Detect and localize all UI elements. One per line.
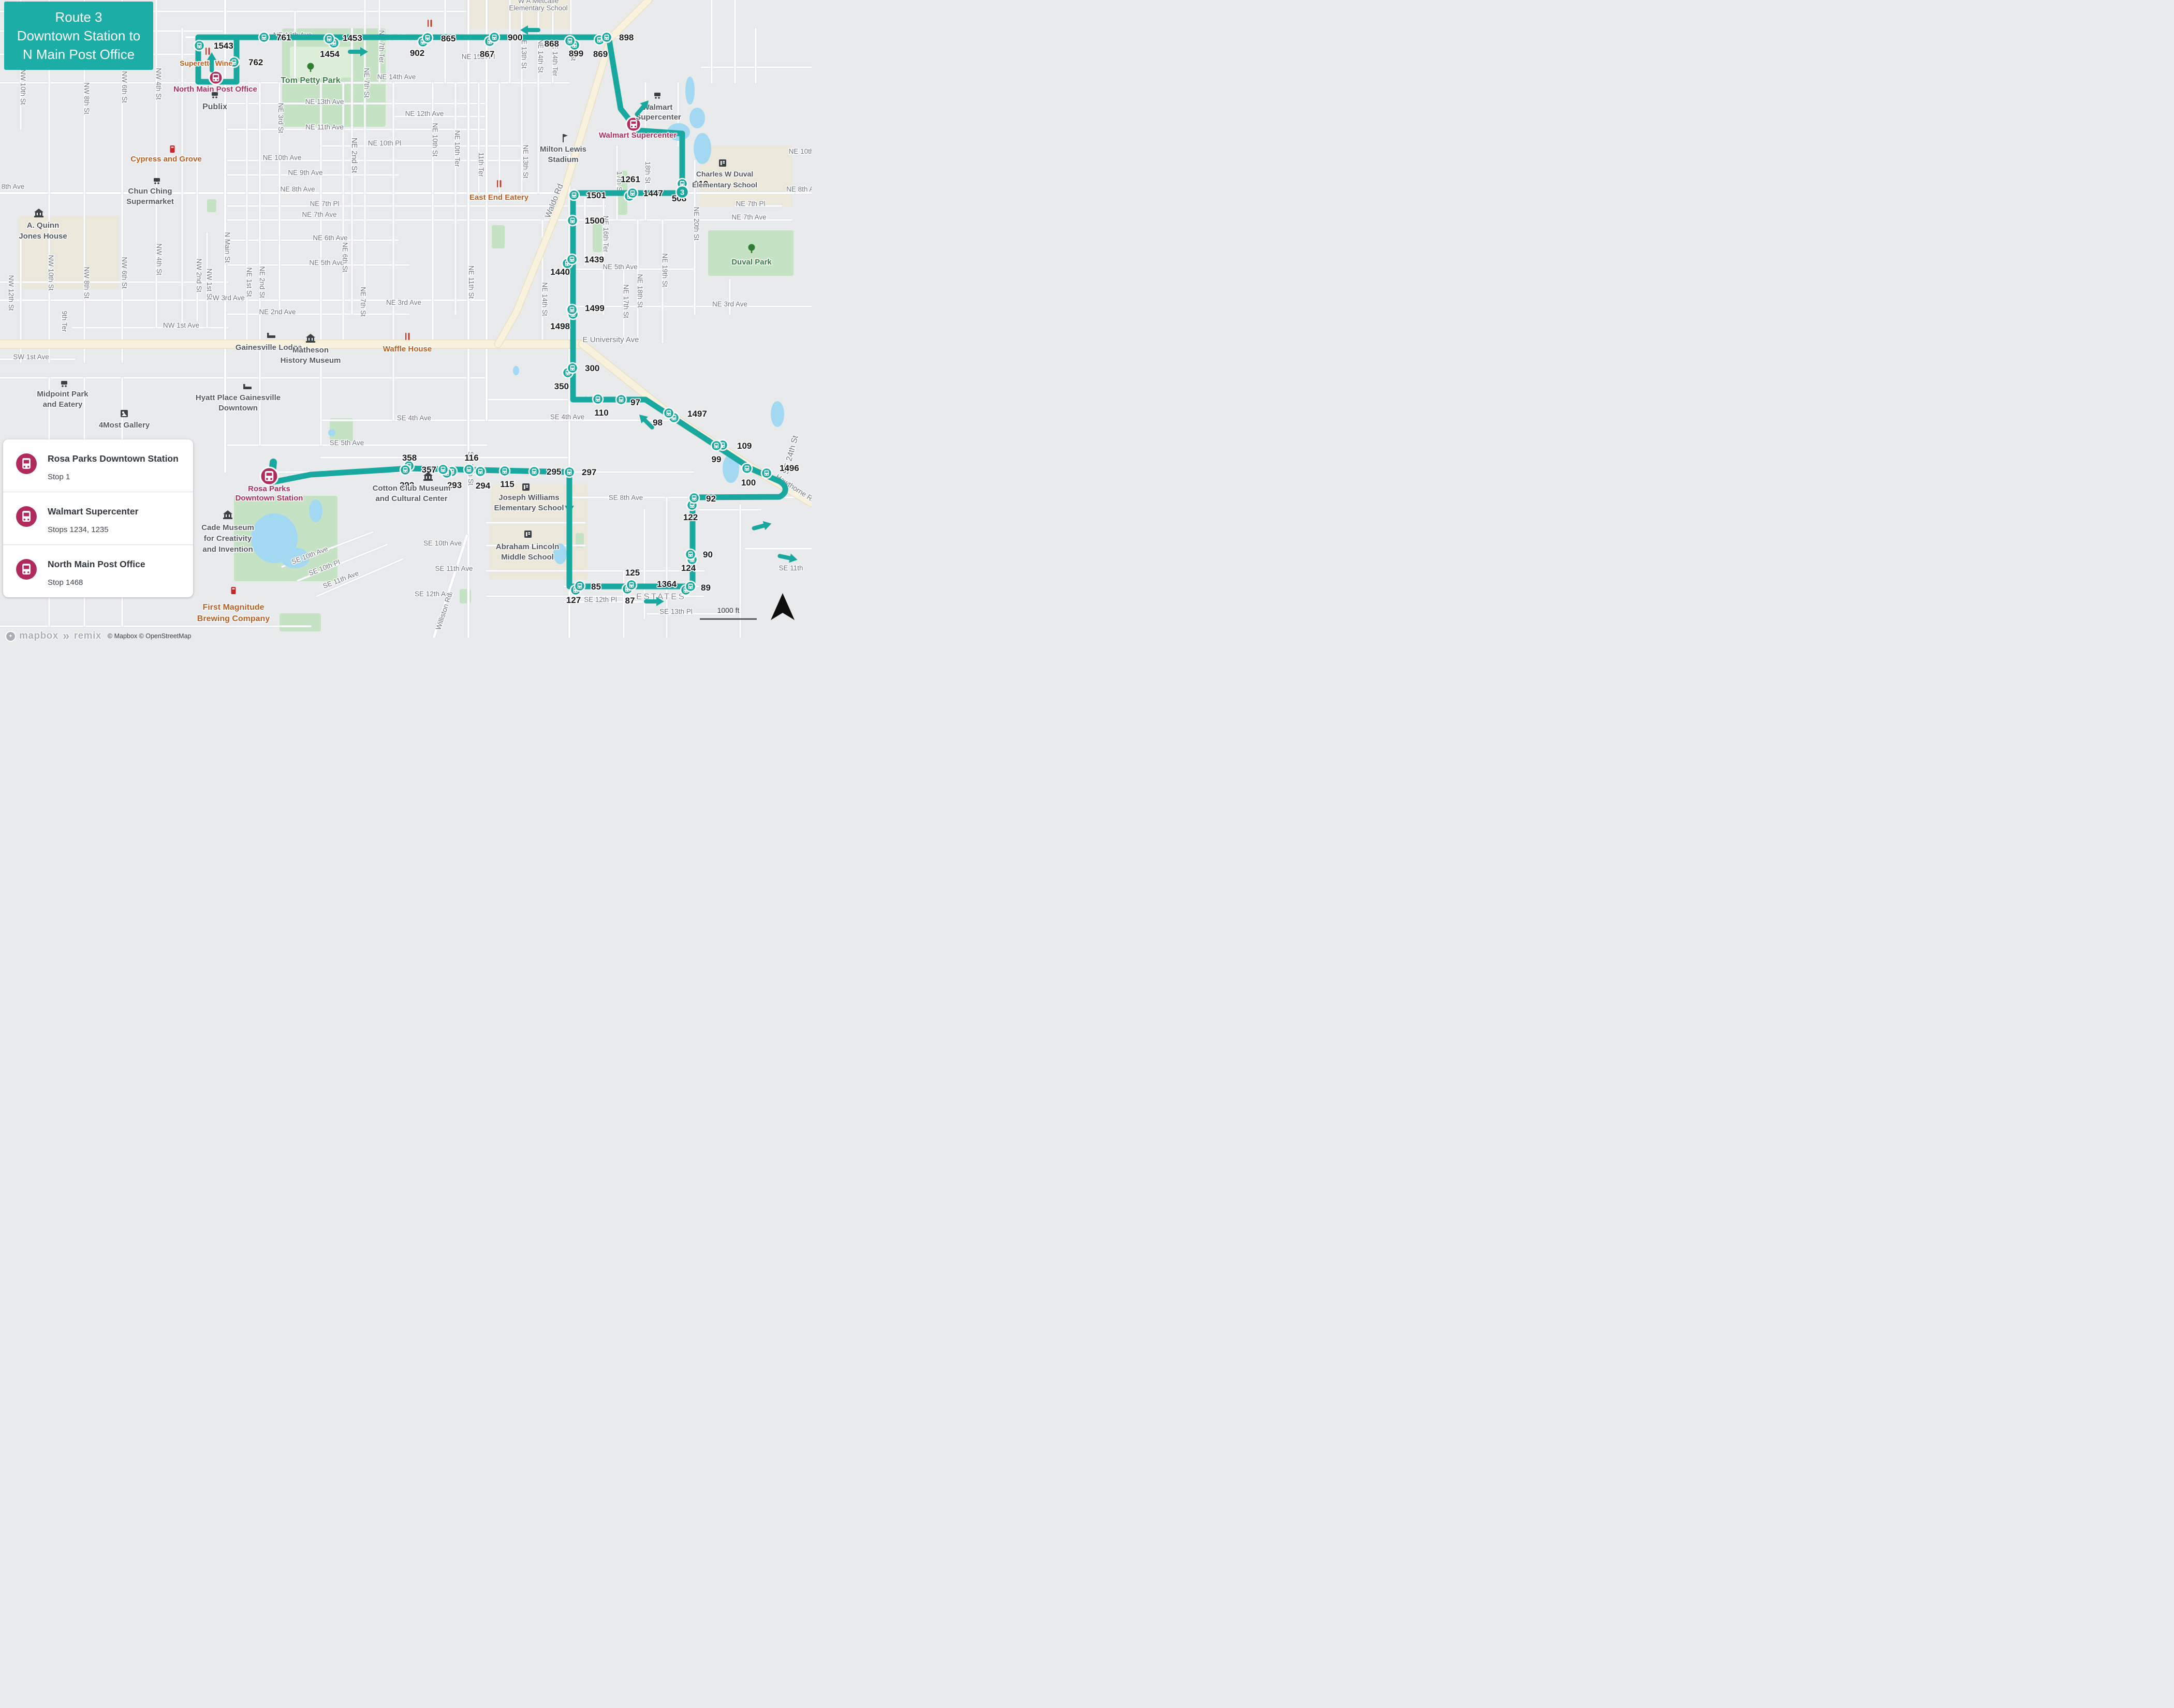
beer-icon [171,146,174,148]
bus-glyph [688,584,693,589]
stop-number-label: 100 [741,478,756,488]
route-title-card: Route 3 Downtown Station to N Main Post … [4,2,153,70]
stop-number-label: 110 [594,408,608,418]
stop-number-label: 98 [653,418,663,428]
bus-glyph [492,35,497,40]
park-area [492,225,505,248]
bus-glyph-light [213,79,215,81]
legend-item-rosa-parks[interactable]: Rosa Parks Downtown Station Stop 1 [3,439,193,492]
bus-glyph-window [605,36,608,37]
bus-glyph-window [214,75,218,77]
street-label: NE 5th Ave [603,263,637,271]
bus-glyph-light [596,400,597,401]
stop-number-label: 294 [476,481,491,491]
poi-label: Matheson [292,346,329,355]
bus-glyph-window [198,44,201,46]
cart-icon [654,93,660,96]
bus-glyph-light [442,470,443,472]
street-label: NE 6th Ave [313,234,347,242]
street-label: NW 8th St [83,267,91,299]
bus-glyph-light [566,264,567,266]
bus-glyph [570,218,575,223]
street-label: NE 13th St [522,144,530,179]
school-icon [719,159,726,167]
museum-icon [309,338,310,341]
bus-glyph-light [570,311,571,312]
mapbox-logo-icon[interactable]: ✦ [6,632,15,641]
bus-glyph [688,552,693,557]
street-label: NE 13th Ave [305,98,344,106]
bus-glyph-window [631,122,636,124]
bus-glyph [532,469,537,474]
cart-icon [215,96,217,98]
bus-glyph-window [745,467,748,468]
street-label: SE 4th Ave [397,414,432,422]
stop-number-label: 865 [441,34,456,43]
bus-glyph-light [667,414,668,415]
bus-glyph-light [505,472,506,473]
bus-glyph [265,471,273,481]
bus-glyph-light [444,470,445,472]
street-label: NE 1st St [245,267,253,297]
bus-glyph-light [672,419,673,420]
street-label: NW 10th St [47,255,55,290]
bus-glyph-light [503,472,504,473]
bus-glyph-light [598,400,599,401]
stop-number-label: 97 [630,397,640,407]
lodging-icon [267,335,275,338]
poi-label: for Creativity [204,534,252,543]
stop-number-label: 1496 [780,463,799,473]
street-label: NW 6th St [121,257,128,289]
bus-glyph-light [576,591,577,592]
water-body [513,366,519,375]
museum-icon [37,213,38,215]
street-label: SW 1st Ave [13,353,49,361]
street-label: NE 7th St [359,287,367,317]
street-label: SE 12th Pl [584,596,617,603]
stop-number-label: 762 [248,57,263,67]
bus-glyph-light [689,587,690,588]
stop-number-label: 122 [683,512,698,522]
museum-icon [429,476,430,479]
street-label: N Main St [224,232,231,263]
poi-label: Middle School [501,553,554,562]
bus-glyph [667,410,671,416]
poi-label: Midpoint Park [37,390,89,399]
bus-glyph-window [571,366,574,368]
water-body [694,133,711,164]
stop-number-label: 1499 [585,303,605,313]
bus-glyph-light [332,44,333,45]
bus-glyph-window [578,584,581,586]
street-label: NE 8th Av [786,185,812,193]
bus-glyph-light [691,555,692,556]
stop-number-label: 1500 [585,216,605,226]
stop-number-label: 1497 [687,409,707,419]
street-label: NE 12th Ave [405,110,444,117]
street-label: NE 7th Pl [736,200,765,208]
bus-glyph-window [630,583,633,585]
poi-label: Brewing Company [197,614,270,623]
bus-glyph-light [217,79,218,81]
map-page: { "title": {"line1":"Route 3","line2":"D… [0,0,812,638]
bus-glyph [441,467,446,472]
station-label: Rosa Parks [248,484,290,493]
stop-number-label: 125 [625,568,640,578]
bus-glyph-window [426,36,429,38]
museum-icon [312,338,313,341]
bus-glyph [403,467,408,473]
street-label: SE 10th Ave [423,539,462,547]
school-icon [721,161,722,165]
bus-glyph-light [600,41,601,42]
bus-glyph-light [423,43,424,44]
street-label: NE 20th St [693,207,700,241]
street-label: SE 8th Ave [609,494,643,502]
museum-icon [34,216,43,217]
bus-glyph-light [479,473,480,474]
bus-stop-icon [16,558,37,580]
poi-label: Tom Petty Park [281,76,340,85]
street-label: SE 11th [778,564,803,572]
tree-icon [310,68,312,72]
street-label: NW 4th St [155,68,163,100]
gallery-icon [122,411,124,414]
poi-label: Charles W Duval [696,170,753,178]
bus-glyph-light [607,38,608,39]
bus-glyph [425,35,430,40]
school-icon [528,534,531,535]
bus-glyph-light [568,473,569,474]
bus-glyph [262,35,267,40]
bus-glyph-light [234,63,236,64]
bus-glyph [567,469,572,475]
bus-glyph-window [689,553,692,554]
lodging-icon [243,387,252,389]
bus-glyph-light [566,374,567,375]
poi-label: Chun Ching [128,187,172,196]
street-label: NW 10th St [19,69,27,105]
bus-glyph-light [747,469,748,470]
bus-glyph-light [447,474,448,475]
bus-glyph-light [628,590,629,591]
poi-label: and Eatery [43,400,83,409]
street-label: SE 5th Ave [330,439,364,447]
street-label: NE 8th Ave [280,185,315,193]
street-label: NE 10th St [431,123,439,157]
legend-stop-name: North Main Post Office [48,557,145,571]
poi-label: Elementary School [494,504,564,512]
bus-glyph-window [570,258,574,259]
legend-stop-ids: Stop 1468 [48,578,145,587]
poi-label: Elementary School [692,181,757,189]
bus-glyph-light [693,506,694,507]
legend-item-post-office[interactable]: North Main Post Office Stop 1468 [3,544,193,597]
museum-icon [307,337,314,341]
bus-glyph-light [568,42,569,43]
street-label: NE 14th St [537,39,545,73]
street-label: 8th Ave [2,183,25,190]
bus-glyph-window [404,468,407,470]
street-label: NE 11th St [467,266,475,299]
copyright-links[interactable]: © Mapbox © OpenStreetMap [108,632,192,640]
museum-icon [226,514,227,517]
bus-glyph-light [572,260,574,261]
bus-glyph [232,60,237,65]
poi-label: Supermarket [126,197,174,206]
stop-number-label: 898 [619,33,634,42]
poi-label: A. Quinn [27,221,60,230]
street-label: NE 10th Ave [263,154,302,161]
bus-glyph [572,193,577,198]
street-label: NE 14th St [541,282,549,316]
bus-glyph-light [535,473,536,474]
bus-glyph-light [630,586,631,587]
bus-glyph-light [571,222,572,223]
school-icon [723,163,725,164]
stops-legend-card: Rosa Parks Downtown Station Stop 1 Walma… [3,439,193,597]
poi-label: East End Eatery [469,193,529,202]
bus-glyph-light [693,499,694,500]
bus-glyph-window [570,308,574,310]
stop-number-label: 1440 [550,267,570,277]
bus-glyph-light [572,196,574,197]
school-icon [528,532,531,533]
bus-glyph-window [568,470,571,472]
school-icon [526,487,528,488]
water-body [771,401,784,427]
route-title-line3: N Main Post Office [23,45,135,64]
bus-glyph [213,73,219,81]
bus-glyph-light [693,561,694,562]
bus-glyph [619,397,624,402]
bus-glyph [570,257,575,262]
cart-icon [62,385,64,387]
bus-glyph-window [328,37,331,39]
map-attribution: ✦ mapbox » remix © Mapbox © OpenStreetMa… [6,629,191,643]
bus-glyph-light [765,474,766,475]
legend-item-walmart[interactable]: Walmart Supercenter Stops 1234, 1235 [3,492,193,544]
stop-number-label: 85 [591,582,601,592]
street-label: 18th St [644,161,652,184]
route-number-badge-text: 3 [680,188,684,197]
stop-number-label: 115 [500,479,514,489]
station-label: Walmart Supercenter [599,131,677,140]
bus-glyph-light [232,63,233,64]
bus-glyph-light [575,196,576,197]
poi-label: Abraham Lincoln [496,542,560,551]
bus-glyph [629,582,634,587]
bus-glyph-light [265,38,266,39]
bus-glyph-light [200,47,201,48]
museum-icon [35,212,42,216]
street-label: NE 10th [789,148,812,155]
bus-glyph-light [723,446,724,447]
bus-glyph-window [689,585,692,586]
bus-glyph-light [626,590,627,591]
poi-label: Joseph Williams [498,493,559,502]
bus-glyph-window [765,472,768,473]
street-label: 11th Ter [477,152,485,177]
bus-glyph-light [689,555,690,556]
street-label: NE 7th Ave [302,211,336,218]
poi-label: and Invention [202,545,253,554]
stop-number-label: 1453 [343,33,362,43]
street-label: NE 7th Pl [310,200,339,208]
bus-glyph-window [493,36,496,37]
bus-glyph-light [717,447,718,448]
bus-glyph-light [691,561,692,562]
bus-glyph-light [715,447,716,448]
bus-glyph-light [467,470,468,472]
bus-glyph-light [570,473,571,474]
stop-number-label: 867 [480,49,494,59]
bus-glyph-window [596,397,599,399]
bus-glyph-light [605,38,606,39]
museum-icon [229,514,230,517]
bus-glyph [570,307,575,312]
bus-glyph-light [691,506,692,507]
stop-number-label: 350 [554,381,569,391]
bus-glyph-light [575,46,576,47]
bus-glyph-window [667,411,670,413]
bus-glyph-window [568,39,571,41]
bus-glyph [197,43,202,48]
school-icon [723,161,725,162]
stop-number-label: 899 [569,49,583,58]
restaurant-icon [431,20,432,27]
bus-glyph-light [574,315,575,316]
bus-glyph-light [493,38,494,39]
bus-glyph-light [570,42,571,43]
bus-glyph-light [469,470,471,472]
bus-glyph-light [270,478,272,480]
museum-icon [40,213,41,215]
bus-glyph-light [571,369,572,370]
school-icon [522,483,530,491]
stop-number-label: 1261 [621,174,640,184]
bus-glyph-light [404,471,405,472]
park-area [708,230,794,276]
bus-glyph-light [620,401,621,402]
bus-glyph [478,469,483,474]
street-label: NE 18th St [636,274,644,308]
museum-icon [223,518,232,519]
poi-label: and Cultural Center [375,494,447,503]
bus-glyph [327,36,332,41]
stop-number-label: 1498 [550,321,570,331]
stop-number-label: 1364 [657,579,677,589]
stop-number-label: 761 [276,33,291,42]
cart-icon [154,182,156,184]
bus-glyph-light [622,401,623,402]
bus-stop-icon [16,453,37,475]
street-label: NE 19th St [661,253,669,287]
poi-label: Downtown [218,404,258,413]
cart-icon [65,385,67,387]
cart-icon [61,381,67,385]
bus-glyph-light [580,587,581,588]
poi-label: Milton Lewis [540,145,586,154]
bus-glyph-light [695,499,696,500]
bus-glyph [714,443,719,448]
bus-glyph-light [669,414,670,415]
street-label: NE 3rd St [277,103,285,134]
poi-label: Duval Park [731,258,772,267]
bus-glyph [692,495,697,500]
poi-label: Publix [202,102,227,111]
poi-label: Waffle House [383,345,432,354]
scale-bar-label: 1000 ft [717,606,740,614]
bus-glyph-light [490,42,491,43]
museum-icon [224,514,231,518]
street-label: NE 2nd St [258,266,266,298]
bus-glyph-light [421,43,422,44]
bus-glyph-light [745,469,746,470]
bus-glyph [745,466,750,471]
cart-icon [655,97,657,99]
stop-number-label: 1501 [586,190,606,200]
street-label: NE 9th Ave [288,169,322,176]
stop-number-label: 127 [566,595,581,605]
park-area [593,224,602,252]
bus-glyph-window [267,473,272,476]
bus-glyph [503,468,507,474]
street-label: NE 10th Pl [368,139,402,147]
street-label: NW 1st St [205,269,213,300]
bus-glyph [605,35,609,40]
street-label: NE 5th Ave [309,259,344,267]
bus-glyph-light [691,587,692,588]
route-title-line2: Downtown Station to [17,26,140,45]
bus-glyph [568,38,572,43]
restaurant-icon [405,333,406,340]
poi-label: Cade Museum [201,523,254,532]
street-label: NW 2nd St [195,258,203,292]
poi-label: Hyatt Place Gainesville [196,393,281,402]
school-icon [526,485,528,486]
mapbox-wordmark[interactable]: mapbox [19,630,58,642]
bus-glyph-window [503,469,506,471]
museum-icon [424,476,432,479]
bus-glyph-light [573,369,574,370]
street-label: Elementary School [509,4,567,12]
bus-glyph-window [598,38,601,40]
bus-glyph-light [428,39,429,40]
poi-label: Cypress and Grove [130,155,202,164]
poi-label: History Museum [281,356,341,365]
remix-wordmark: remix [74,630,101,642]
bus-glyph [596,396,600,402]
bus-glyph-light [573,222,574,223]
street-label: NE 7th Ave [731,213,766,221]
stop-number-label: 89 [701,583,711,593]
stop-number-label: 902 [410,48,424,58]
museum-icon [423,479,433,481]
cart-icon [212,92,218,96]
bus-glyph-window [631,192,634,193]
street-label: SE 13th Pl [659,608,693,615]
bus-glyph-light [572,311,574,312]
beer-icon [232,588,235,590]
bus-glyph-light [632,586,633,587]
street-label: NE 2nd St [350,138,359,173]
bus-glyph-light [598,41,599,42]
school-icon [524,531,532,538]
poi-label: First Magnitude [202,603,264,612]
stop-number-label: 869 [593,49,608,59]
